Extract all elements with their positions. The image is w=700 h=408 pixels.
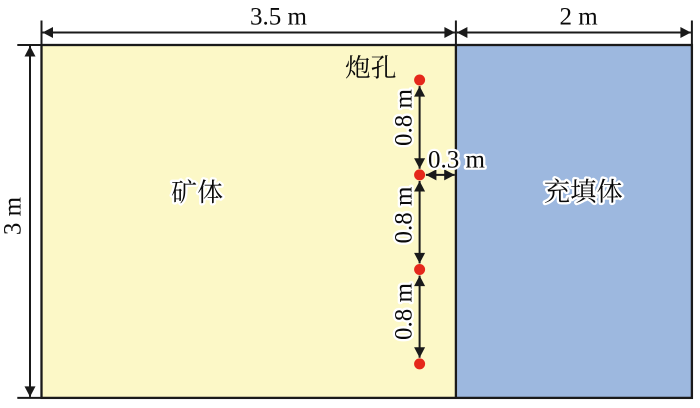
svg-text:2 m: 2 m [560, 4, 599, 31]
svg-text:3 m: 3 m [0, 196, 27, 235]
svg-text:0.8 m: 0.8 m [391, 186, 418, 244]
svg-text:0.8 m: 0.8 m [391, 282, 418, 340]
svg-text:0.8 m: 0.8 m [391, 88, 418, 146]
svg-text:0.3 m: 0.3 m [428, 147, 486, 174]
svg-text:3.5 m: 3.5 m [250, 4, 308, 31]
